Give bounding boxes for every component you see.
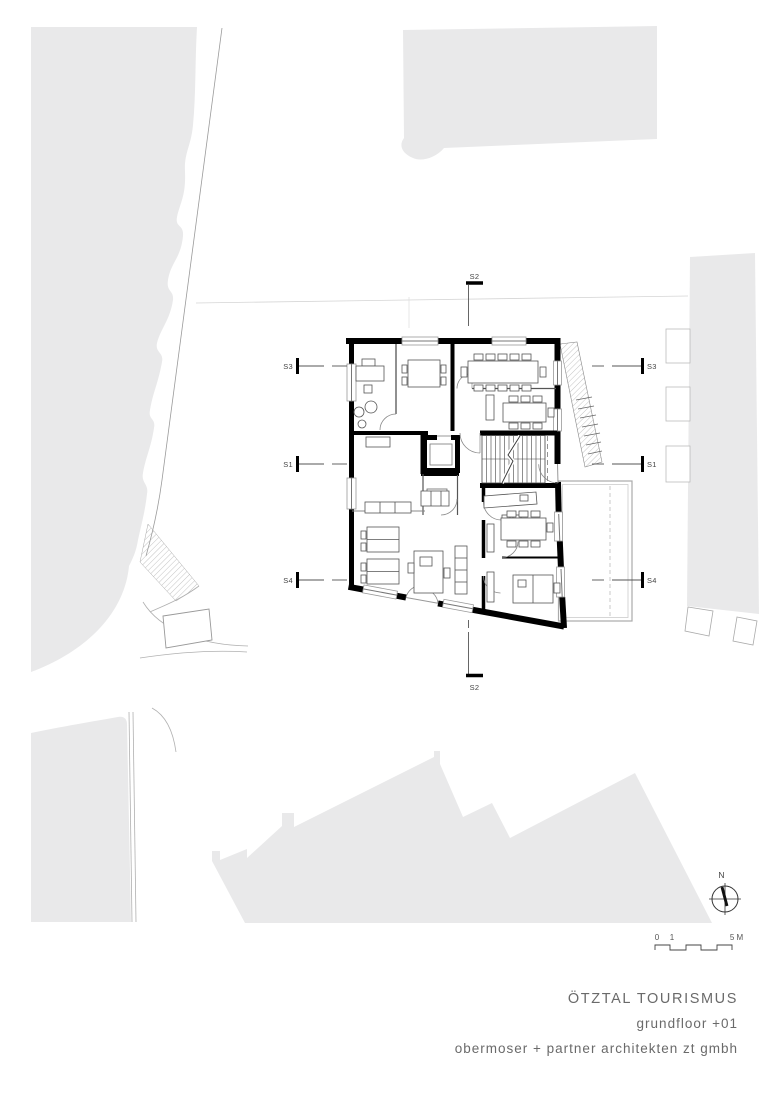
section-marker-s3-right: S3 bbox=[592, 358, 657, 374]
section-marker-s1-left: S1 bbox=[283, 456, 347, 472]
site-plan-svg: S3 S3 S1 S1 S4 bbox=[0, 0, 780, 1104]
office-lower-right-furniture bbox=[487, 572, 560, 603]
annex-terrace bbox=[559, 481, 633, 621]
floor-label: grundfloor +01 bbox=[637, 1016, 738, 1031]
section-label-s3-right: S3 bbox=[647, 362, 657, 371]
external-stair bbox=[560, 342, 602, 467]
meeting-room-furniture bbox=[486, 395, 554, 429]
scale-label-five: 5 M bbox=[730, 933, 744, 942]
section-label-s1-left: S1 bbox=[283, 460, 293, 469]
elevator bbox=[425, 433, 458, 471]
north-label: N bbox=[718, 870, 724, 880]
staircase bbox=[482, 436, 548, 484]
office-top-middle-furniture bbox=[402, 360, 446, 387]
scale-bar-line bbox=[655, 945, 732, 950]
neighbor-building-right bbox=[687, 253, 759, 614]
section-marker-s3-left: S3 bbox=[283, 358, 347, 374]
section-label-s1-right: S1 bbox=[647, 460, 657, 469]
scale-bar: 0 1 5 M bbox=[655, 933, 744, 950]
drawing-sheet: S3 S3 S1 S1 S4 bbox=[0, 0, 780, 1104]
floor-plan bbox=[346, 337, 632, 628]
section-label-s2-bottom: S2 bbox=[470, 683, 480, 692]
section-marker-s1-right: S1 bbox=[592, 456, 657, 472]
section-marker-s2-bottom: S2 bbox=[466, 620, 483, 692]
title-block: ÖTZTAL TOURISMUS grundfloor +01 obermose… bbox=[455, 989, 738, 1056]
neighbor-building-right-windows bbox=[666, 329, 690, 482]
scale-label-zero: 0 bbox=[655, 933, 660, 942]
section-label-s4-right: S4 bbox=[647, 576, 657, 585]
conference-room-furniture bbox=[461, 354, 546, 391]
small-building-outline bbox=[163, 609, 212, 648]
section-label-s2-top: S2 bbox=[470, 272, 480, 281]
open-office-furniture bbox=[361, 502, 467, 594]
neighbor-building-top bbox=[401, 26, 657, 160]
section-marker-s4-left: S4 bbox=[283, 572, 347, 588]
firm-name: obermoser + partner architekten zt gmbh bbox=[455, 1041, 738, 1056]
site-boundary-line bbox=[196, 296, 688, 303]
slope-hatch bbox=[140, 524, 199, 601]
section-label-s4-left: S4 bbox=[283, 576, 293, 585]
neighbor-building-bottom bbox=[212, 751, 712, 923]
scale-label-one: 1 bbox=[670, 933, 675, 942]
section-label-s3-left: S3 bbox=[283, 362, 293, 371]
north-arrow-icon: N bbox=[709, 870, 741, 915]
project-title: ÖTZTAL TOURISMUS bbox=[568, 989, 738, 1007]
meeting-room-lower-furniture bbox=[487, 511, 553, 552]
neighbor-sheds bbox=[685, 607, 757, 645]
neighbor-building-bottom-left bbox=[31, 717, 131, 922]
site-context bbox=[31, 26, 759, 923]
